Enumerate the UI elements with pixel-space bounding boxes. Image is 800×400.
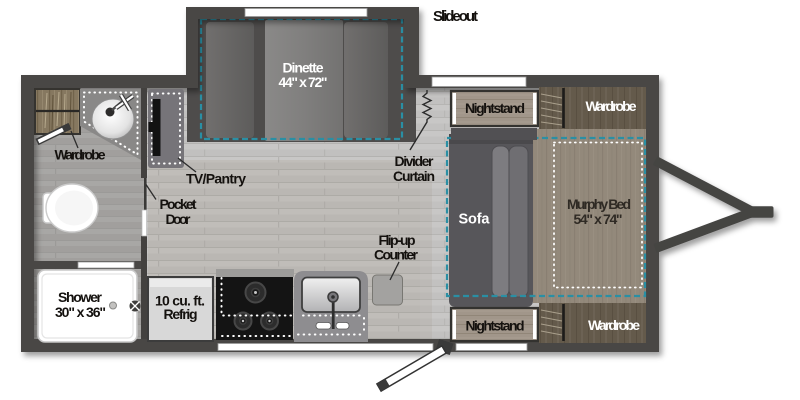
svg-text:54" x 74": 54" x 74": [574, 211, 623, 227]
svg-text:Wardrobe: Wardrobe: [586, 98, 637, 114]
svg-text:Sofa: Sofa: [459, 212, 491, 228]
svg-text:Wardrobe: Wardrobe: [588, 317, 640, 333]
svg-text:Wardrobe: Wardrobe: [55, 147, 106, 163]
svg-text:TV/Pantry: TV/Pantry: [186, 171, 246, 187]
svg-text:30" x 36": 30" x 36": [55, 304, 106, 320]
svg-text:Refrig: Refrig: [164, 306, 198, 322]
svg-text:Divider: Divider: [395, 153, 435, 169]
svg-text:Nightstand: Nightstand: [465, 100, 525, 116]
svg-text:Slideout: Slideout: [433, 8, 478, 25]
svg-text:Counter: Counter: [374, 247, 419, 263]
svg-text:Curtain: Curtain: [393, 168, 435, 184]
svg-text:Murphy Bed: Murphy Bed: [567, 196, 631, 212]
svg-text:Pocket: Pocket: [160, 196, 197, 212]
svg-text:Nightstand: Nightstand: [466, 318, 525, 334]
svg-text:Shower: Shower: [58, 289, 103, 305]
svg-text:Door: Door: [166, 211, 192, 227]
svg-text:44" x 72": 44" x 72": [279, 74, 328, 90]
